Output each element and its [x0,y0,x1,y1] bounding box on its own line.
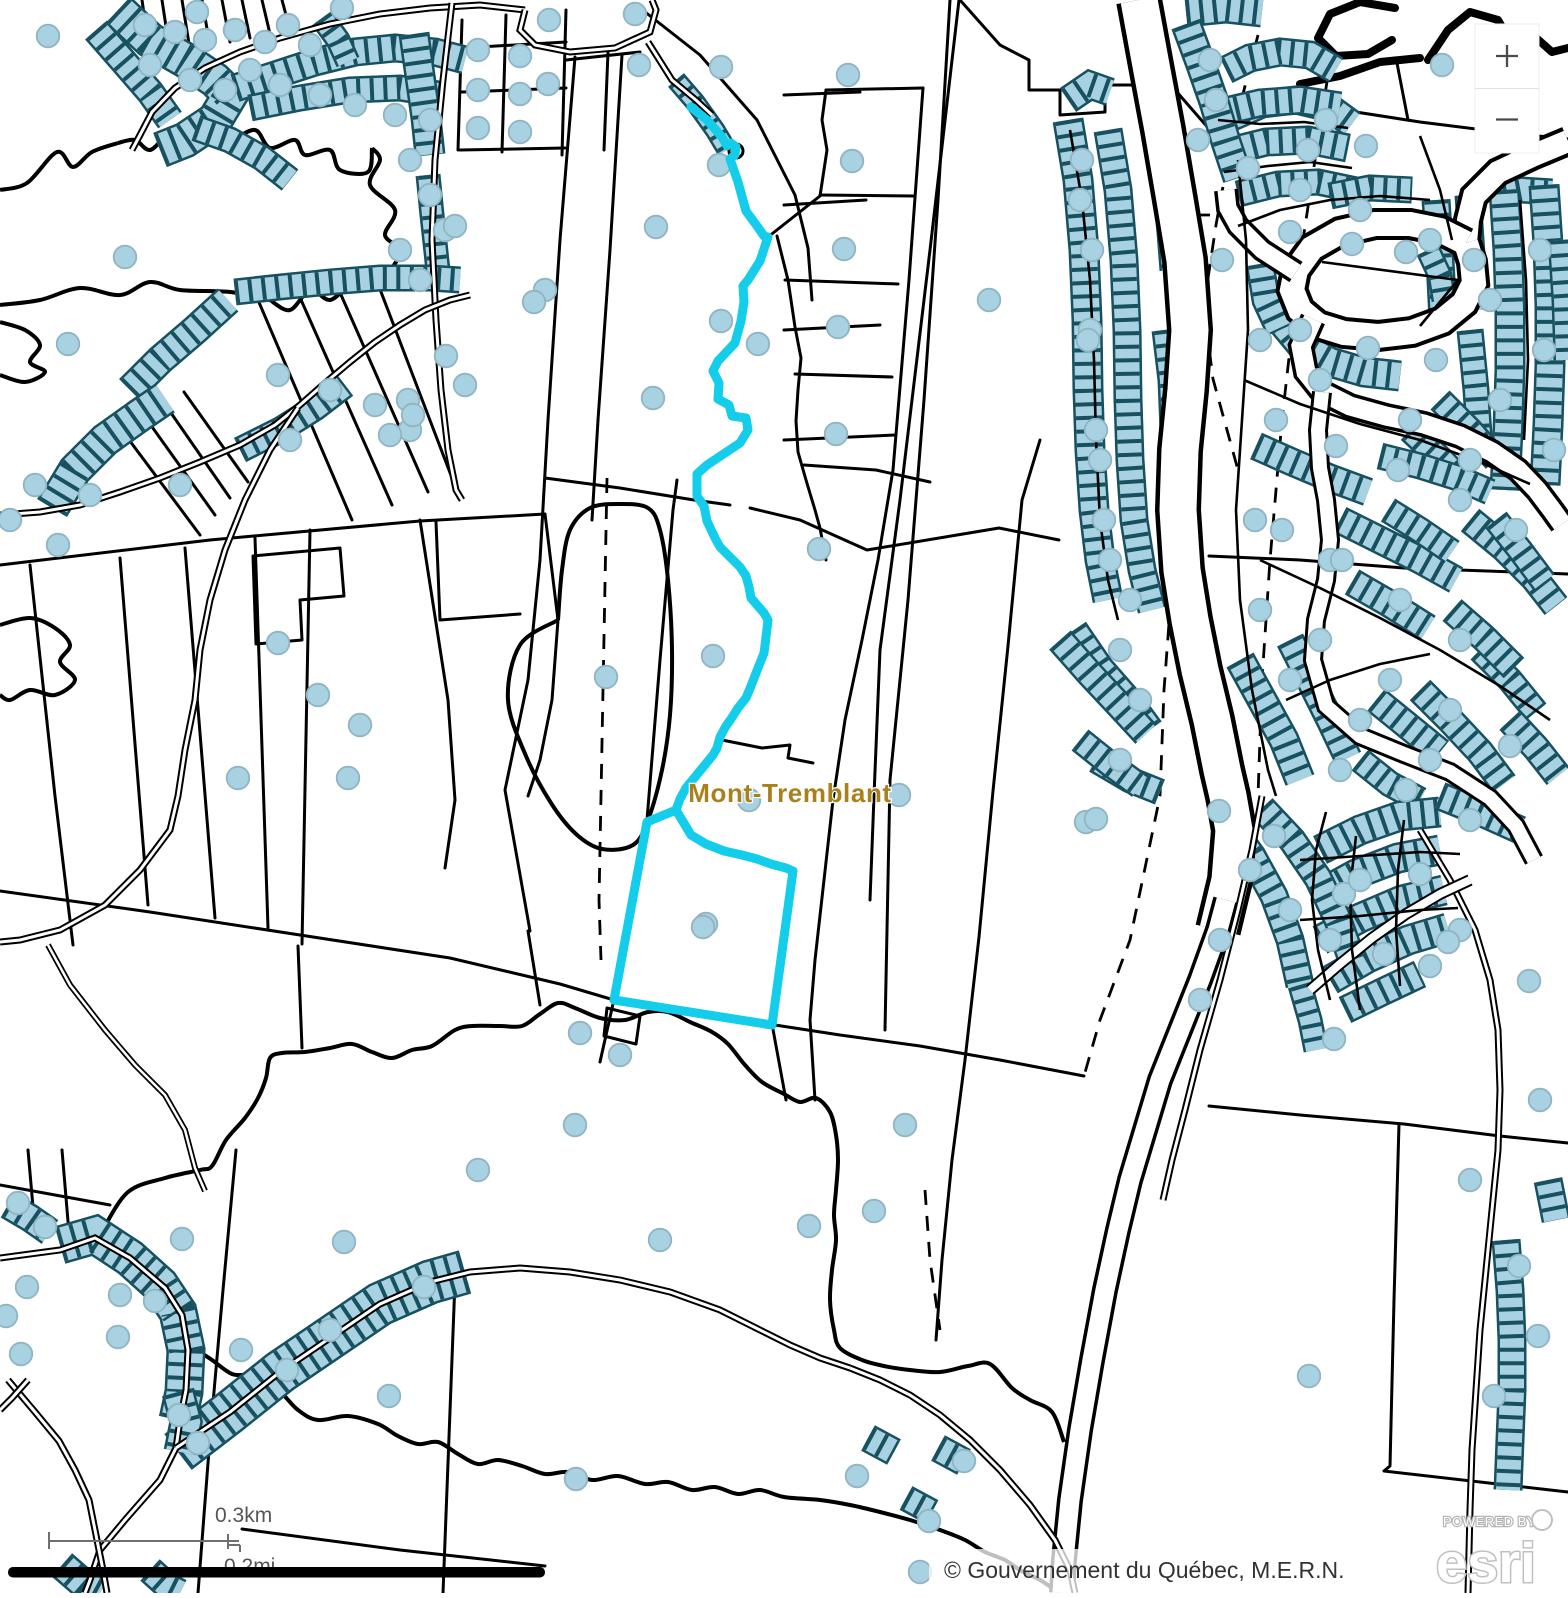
svg-text:esri: esri [1436,1531,1536,1593]
svg-text:0.3km: 0.3km [215,1504,272,1527]
svg-text:© Gouvernement du Québec, M.E.: © Gouvernement du Québec, M.E.R.N. [944,1557,1344,1583]
svg-text:POWERED BY: POWERED BY [1443,1514,1536,1529]
svg-text:Mont-Tremblant: Mont-Tremblant [688,778,891,808]
